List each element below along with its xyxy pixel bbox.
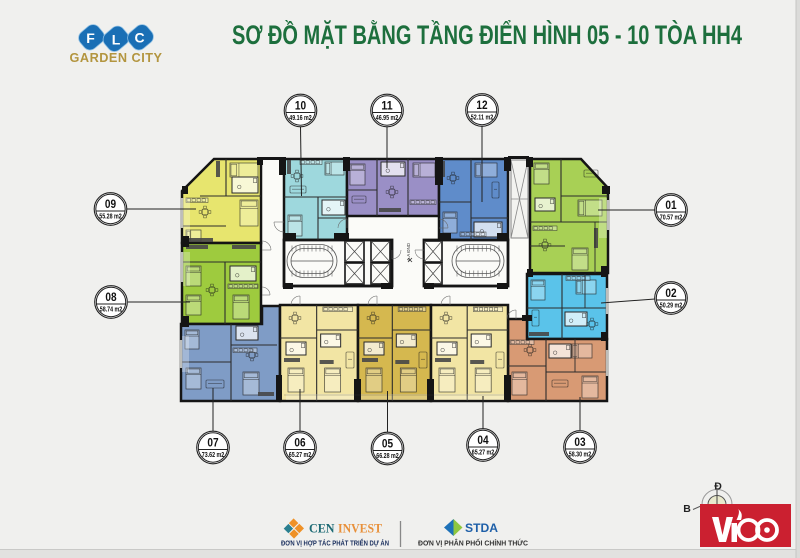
svg-text:46.95 m2: 46.95 m2 [376,115,399,122]
svg-text:58.74 m2: 58.74 m2 [100,307,123,314]
svg-text:03: 03 [574,435,585,449]
svg-text:66.28 m2: 66.28 m2 [376,453,399,460]
svg-text:65.27 m2: 65.27 m2 [472,450,495,457]
svg-text:52.11 m2: 52.11 m2 [471,115,494,122]
svg-text:08: 08 [105,290,116,304]
svg-text:CEN: CEN [309,521,335,536]
svg-text:04: 04 [477,433,488,447]
svg-text:49.16 m2: 49.16 m2 [289,115,312,122]
svg-text:70.57 m2: 70.57 m2 [660,215,683,222]
svg-text:06: 06 [294,436,305,450]
svg-text:Đ: Đ [714,481,722,493]
svg-text:55.28 m2: 55.28 m2 [99,214,122,221]
svg-text:SƠ ĐỒ MẶT BẰNG TẦNG ĐIỂN HÌNH: SƠ ĐỒ MẶT BẰNG TẦNG ĐIỂN HÌNH 05 - 10 TÒ… [232,19,742,50]
svg-text:05: 05 [382,437,393,451]
svg-text:B: B [683,503,691,515]
svg-text:12: 12 [476,98,487,112]
svg-text:ĐƠN VỊ HỢP TÁC PHÁT TRIỂN DỰ Á: ĐƠN VỊ HỢP TÁC PHÁT TRIỂN DỰ ÁN [281,539,389,548]
svg-text:73.62 m2: 73.62 m2 [202,452,225,459]
svg-text:58.30 m2: 58.30 m2 [569,452,592,459]
svg-text:09: 09 [105,197,116,211]
svg-text:L: L [112,32,121,48]
svg-text:07: 07 [207,436,218,450]
svg-text:02: 02 [665,286,676,300]
svg-text:01: 01 [665,198,676,212]
svg-text:65.27 m2: 65.27 m2 [289,452,312,459]
svg-text:10: 10 [295,99,306,113]
svg-text:C: C [134,29,144,45]
svg-text:11: 11 [381,99,392,113]
svg-text:INVEST: INVEST [338,521,382,536]
svg-text:STDA: STDA [465,521,498,535]
svg-text:F: F [86,30,95,46]
svg-text:GARDEN CITY: GARDEN CITY [70,51,163,65]
svg-text:50.29 m2: 50.29 m2 [660,303,683,310]
